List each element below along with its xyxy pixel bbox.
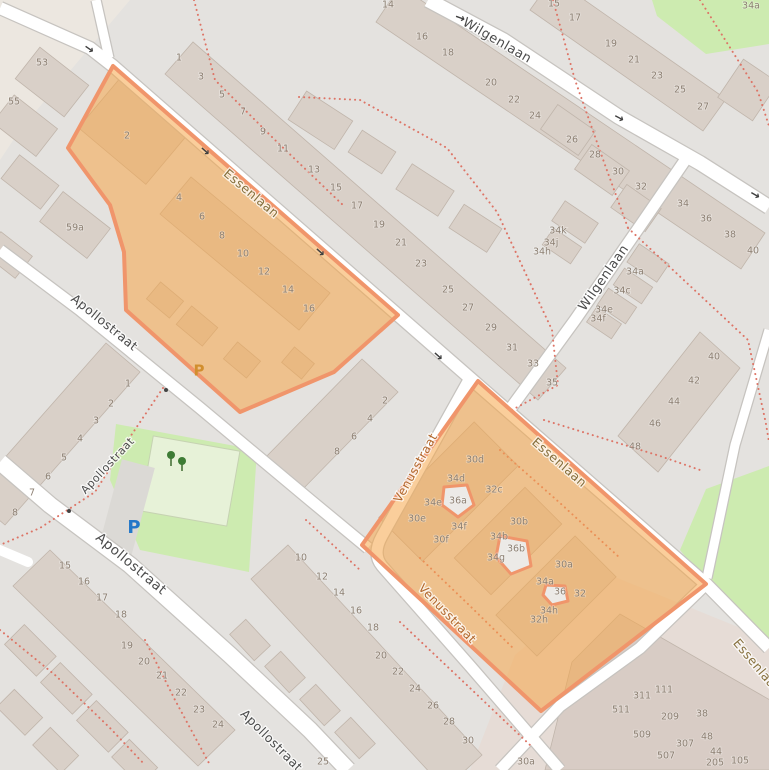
house-number-label: 33 xyxy=(527,359,539,370)
house-number-label: 31 xyxy=(506,343,518,354)
house-number-label: 8 xyxy=(219,231,225,242)
house-number-label: 38 xyxy=(696,709,708,720)
house-number-label: 30b xyxy=(510,517,528,528)
house-number-label: 34b xyxy=(490,532,508,543)
house-number-label: 40 xyxy=(708,352,720,363)
house-number-label: 11 xyxy=(277,144,289,155)
house-number-label: 307 xyxy=(676,739,694,750)
house-number-label: 16 xyxy=(350,606,362,617)
house-number-label: 32 xyxy=(574,589,586,600)
house-number-label: 10 xyxy=(295,553,307,564)
house-number-label: 12 xyxy=(316,572,328,583)
house-number-label: 507 xyxy=(657,751,675,762)
house-number-label: 20 xyxy=(375,651,387,662)
house-number-label: 34a xyxy=(536,577,554,588)
parking-icon: P xyxy=(127,517,140,538)
house-number-label: 17 xyxy=(569,13,581,24)
house-number-label: 13 xyxy=(308,165,320,176)
house-number-label: 209 xyxy=(661,712,679,723)
house-number-label: 5 xyxy=(219,90,225,101)
house-number-label: 46 xyxy=(649,419,661,430)
house-number-label: 34h xyxy=(533,247,551,258)
house-number-label: 18 xyxy=(442,48,454,59)
house-number-label: 16 xyxy=(78,577,90,588)
house-number-label: 18 xyxy=(367,623,379,634)
house-number-label: 15 xyxy=(548,0,560,10)
house-number-label: 30a xyxy=(517,757,535,768)
house-number-label: 7 xyxy=(29,488,35,499)
house-number-label: 6 xyxy=(351,432,357,443)
house-number-label: 35 xyxy=(546,378,558,389)
house-number-label: 53 xyxy=(36,58,48,69)
house-number-label: 40 xyxy=(747,246,759,257)
house-number-label: 26 xyxy=(427,701,439,712)
house-number-label: 19 xyxy=(121,641,133,652)
house-number-label: 17 xyxy=(96,593,108,604)
house-number-label: 48 xyxy=(629,442,641,453)
house-number-label: 2 xyxy=(108,399,114,410)
house-number-label: 23 xyxy=(415,259,427,270)
house-number-label: 12 xyxy=(258,267,270,278)
house-number-label: 44 xyxy=(710,747,722,758)
house-number-label: 9 xyxy=(260,127,266,138)
house-number-label: 34k xyxy=(549,226,567,237)
house-number-label: 105 xyxy=(731,756,749,767)
house-number-label: 3 xyxy=(198,72,204,83)
house-number-label: 4 xyxy=(77,434,83,445)
house-number-label: 20 xyxy=(485,78,497,89)
house-number-label: 14 xyxy=(382,0,394,11)
house-number-label: 22 xyxy=(392,667,404,678)
house-number-label: 59a xyxy=(66,223,84,234)
house-number-label: 1 xyxy=(125,379,131,390)
house-number-label: 34 xyxy=(677,199,689,210)
house-number-label: 27 xyxy=(462,303,474,314)
house-number-label: 36 xyxy=(554,587,566,598)
house-number-label: 42 xyxy=(688,376,700,387)
house-number-label: 18 xyxy=(115,610,127,621)
house-number-label: 28 xyxy=(443,717,455,728)
house-number-label: 30 xyxy=(612,167,624,178)
house-number-label: 27 xyxy=(697,102,709,113)
house-number-label: 10 xyxy=(237,249,249,260)
house-number-label: 16 xyxy=(416,32,428,43)
house-number-label: 32c xyxy=(485,485,502,496)
house-number-label: 22 xyxy=(508,95,520,106)
house-number-label: 38 xyxy=(724,230,736,241)
house-number-label: 6 xyxy=(45,472,51,483)
house-number-label: 25 xyxy=(317,757,329,768)
house-number-label: 19 xyxy=(605,39,617,50)
house-number-label: 19 xyxy=(373,220,385,231)
house-number-label: 30a xyxy=(555,560,573,571)
house-number-label: 23 xyxy=(193,705,205,716)
house-number-label: 14 xyxy=(333,588,345,599)
house-number-label: 29 xyxy=(485,323,497,334)
house-number-label: 509 xyxy=(633,730,651,741)
house-number-label: 30e xyxy=(408,514,426,525)
house-number-label: 1 xyxy=(176,53,182,64)
road-end-stub xyxy=(0,548,28,562)
house-number-label: 28 xyxy=(589,150,601,161)
house-number-label: 25 xyxy=(674,85,686,96)
house-number-label: 3 xyxy=(93,416,99,427)
house-number-label: 511 xyxy=(612,705,630,716)
parking-icon: P xyxy=(194,362,205,380)
house-number-label: 34d xyxy=(447,474,465,485)
house-number-label: 6 xyxy=(199,212,205,223)
house-number-label: 4 xyxy=(367,414,373,425)
house-number-label: 26 xyxy=(566,135,578,146)
house-number-label: 30d xyxy=(466,455,484,466)
house-number-label: 2 xyxy=(124,131,130,142)
park-building xyxy=(140,436,240,526)
house-number-label: 24 xyxy=(212,720,224,731)
house-number-label: 311 xyxy=(633,691,651,702)
house-number-label: 36b xyxy=(507,544,525,555)
house-number-label: 44 xyxy=(668,397,680,408)
house-number-label: 34e xyxy=(424,498,442,509)
house-number-label: 24 xyxy=(409,684,421,695)
house-number-label: 32h xyxy=(530,615,548,626)
house-number-label: 34a xyxy=(742,1,760,12)
house-number-label: 30f xyxy=(433,535,449,546)
house-number-label: 7 xyxy=(240,107,246,118)
house-number-label: 34g xyxy=(487,553,505,564)
house-number-label: 21 xyxy=(156,671,168,682)
house-number-label: 4 xyxy=(176,193,182,204)
house-number-label: 21 xyxy=(628,55,640,66)
house-number-label: 32 xyxy=(635,182,647,193)
house-number-label: 36a xyxy=(449,496,467,507)
house-number-label: 21 xyxy=(395,238,407,249)
house-number-label: 15 xyxy=(59,561,71,572)
house-number-label: 23 xyxy=(651,71,663,82)
house-number-label: 24 xyxy=(529,111,541,122)
house-number-label: 2 xyxy=(382,396,388,407)
house-number-label: 34a xyxy=(626,267,644,278)
house-number-label: 30 xyxy=(462,736,474,747)
house-number-label: 17 xyxy=(351,201,363,212)
house-number-label: 20 xyxy=(138,657,150,668)
house-number-label: 5 xyxy=(61,453,67,464)
house-number-label: 22 xyxy=(175,688,187,699)
house-number-label: 34c xyxy=(613,286,630,297)
house-number-label: 36 xyxy=(700,214,712,225)
house-number-label: 205 xyxy=(706,758,724,769)
house-number-label: 48 xyxy=(701,732,713,743)
osm-map-canvas[interactable]: 535559a135791113151719212325272931333514… xyxy=(0,0,769,770)
house-number-label: 25 xyxy=(442,285,454,296)
house-number-label: 111 xyxy=(655,685,673,696)
house-number-label: 8 xyxy=(334,447,340,458)
house-number-label: 15 xyxy=(330,183,342,194)
house-number-label: 14 xyxy=(282,285,294,296)
house-number-label: 55 xyxy=(8,97,20,108)
house-number-label: 8 xyxy=(12,508,18,519)
house-number-label: 34f xyxy=(451,522,467,533)
house-number-label: 34f xyxy=(590,314,606,325)
house-number-label: 16 xyxy=(303,304,315,315)
